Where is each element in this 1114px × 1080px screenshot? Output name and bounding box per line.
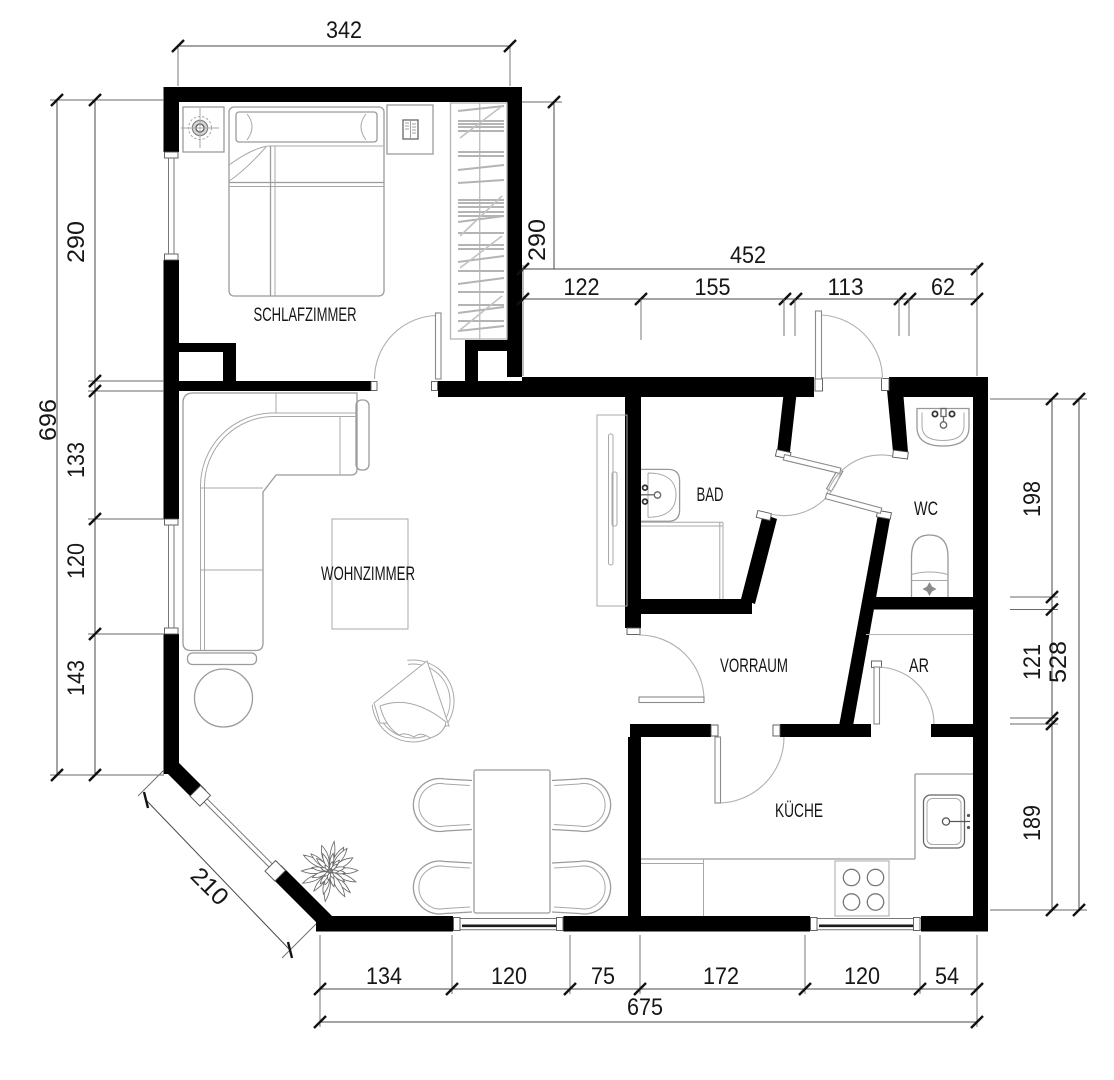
svg-text:120: 120 [63,543,90,579]
svg-text:675: 675 [627,994,663,1021]
svg-text:342: 342 [326,17,362,44]
svg-text:75: 75 [591,963,615,990]
svg-text:BAD: BAD [697,485,724,506]
svg-text:452: 452 [730,242,766,269]
svg-text:528: 528 [1045,641,1072,683]
svg-text:290: 290 [63,221,90,263]
svg-text:696: 696 [35,399,62,441]
svg-text:134: 134 [366,963,402,990]
svg-text:62: 62 [931,274,955,301]
svg-text:113: 113 [828,274,864,301]
svg-text:120: 120 [491,963,527,990]
svg-text:AR: AR [909,656,929,677]
svg-text:WC: WC [914,499,938,520]
svg-text:189: 189 [1019,805,1046,841]
svg-text:54: 54 [935,963,959,990]
svg-text:172: 172 [703,963,739,990]
svg-text:155: 155 [695,274,731,301]
svg-text:120: 120 [844,963,880,990]
svg-text:VORRAUM: VORRAUM [720,656,788,677]
svg-text:122: 122 [564,274,600,301]
svg-text:KÜCHE: KÜCHE [775,801,823,822]
svg-text:SCHLAFZIMMER: SCHLAFZIMMER [254,305,357,326]
svg-text:143: 143 [63,660,90,696]
svg-text:133: 133 [63,442,90,478]
svg-text:WOHNZIMMER: WOHNZIMMER [321,564,415,585]
svg-text:290: 290 [524,219,551,261]
svg-text:121: 121 [1019,644,1046,680]
svg-text:198: 198 [1019,481,1046,517]
